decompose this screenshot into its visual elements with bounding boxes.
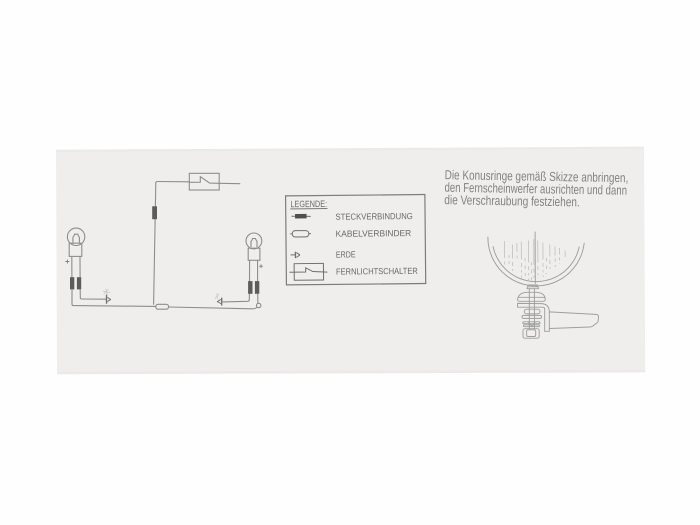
svg-text:ERDE: ERDE [336,249,356,259]
svg-text:KABELVERBINDER: KABELVERBINDER [336,228,412,239]
svg-text:die Verschraubung festziehen.: die Verschraubung festziehen. [444,192,580,209]
svg-text:FERNLICHTSCHALTER: FERNLICHTSCHALTER [336,266,418,277]
svg-text:LEGENDE:: LEGENDE: [290,199,327,209]
svg-text:STECKVERBINDUNG: STECKVERBINDUNG [335,211,413,222]
